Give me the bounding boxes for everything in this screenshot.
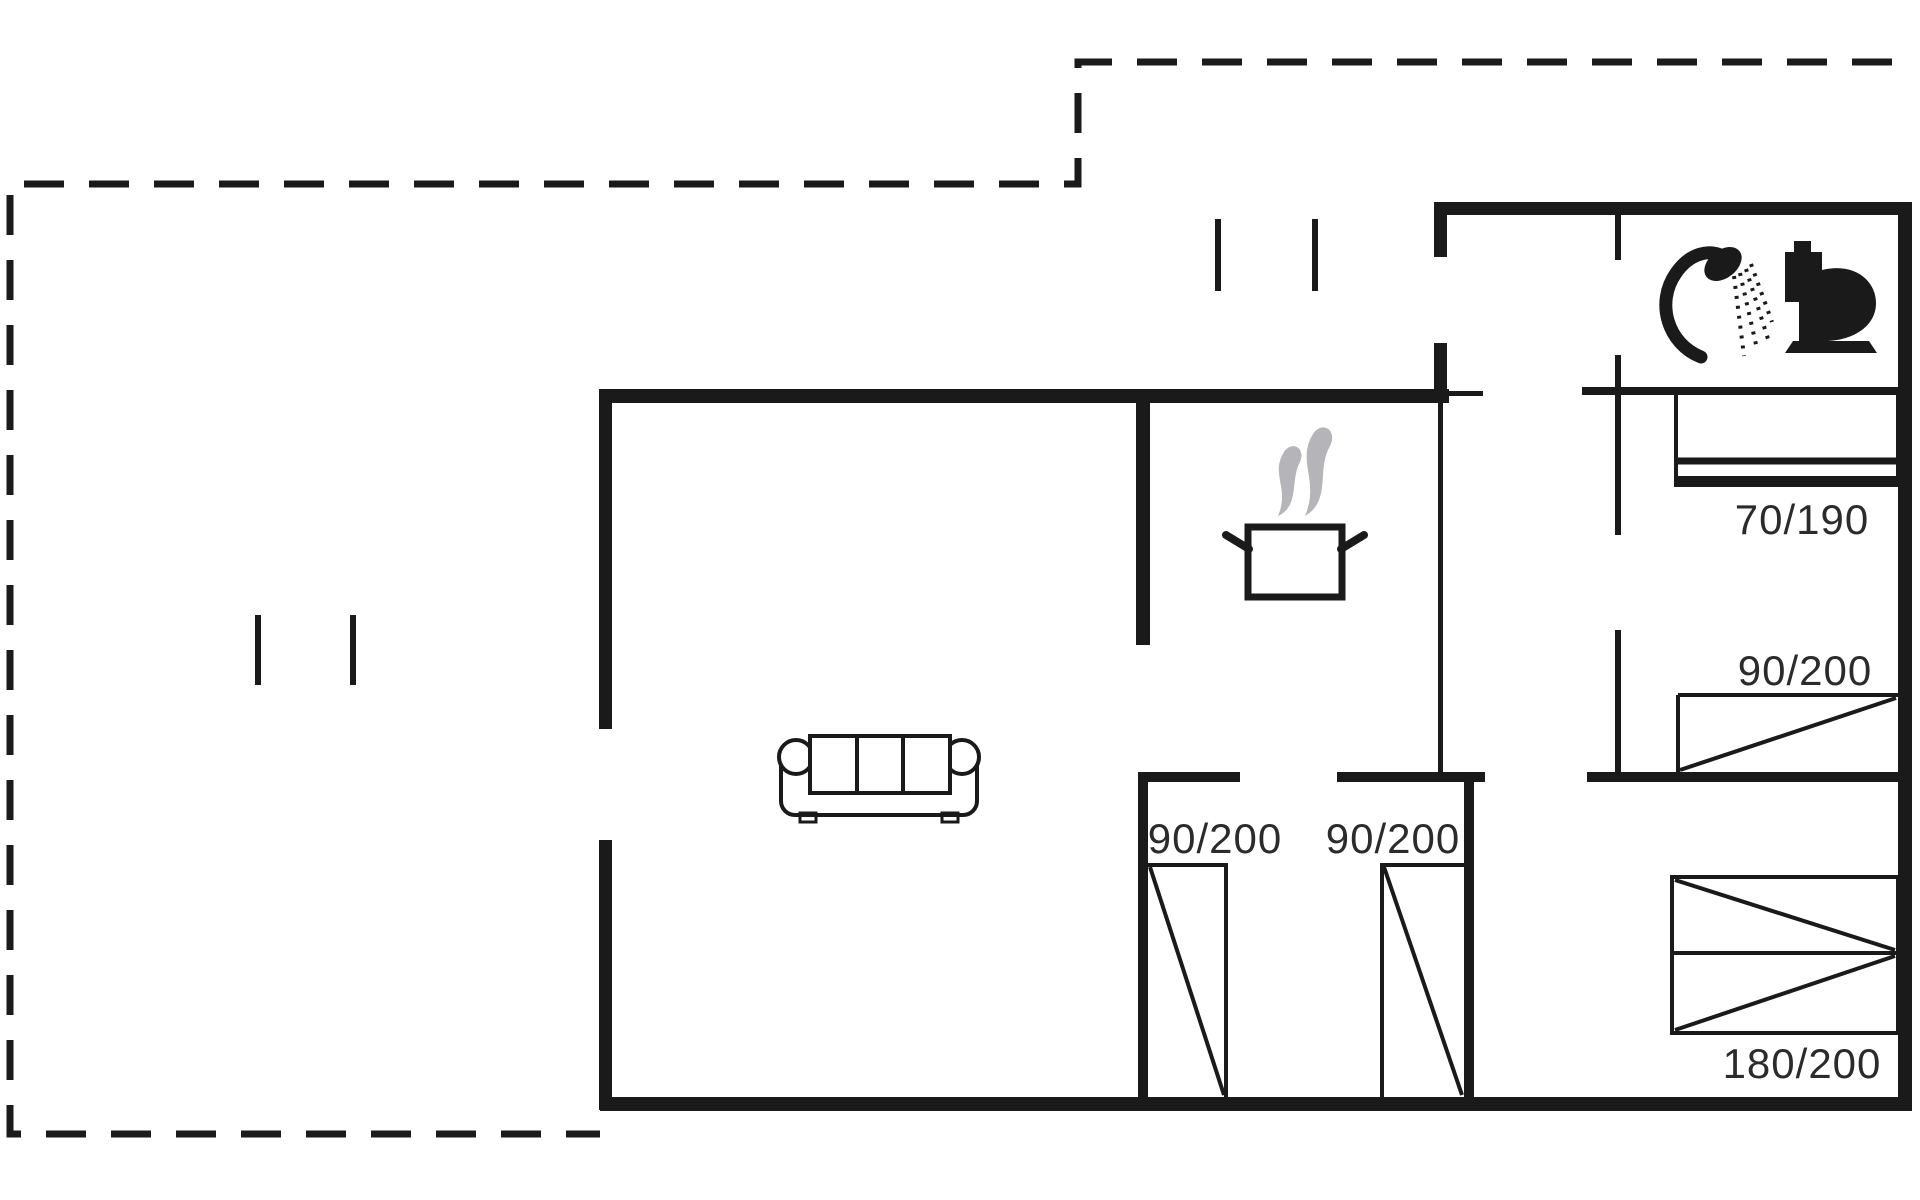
toilet-tank-cap-icon [1794, 241, 1811, 253]
plan-background [0, 0, 1920, 1200]
floor-plan-svg: 70/19090/20090/20090/200180/200 [0, 0, 1920, 1200]
label-closet-90-200-right: 90/200 [1326, 815, 1460, 862]
door-jamb-tick [1443, 391, 1483, 396]
sofa-arm-left [779, 740, 813, 774]
wall-right [1898, 202, 1912, 1111]
label-bed-180-200: 180/200 [1723, 1040, 1882, 1087]
post-terrace-left-1 [255, 615, 261, 685]
wall-entry-lower [1434, 343, 1447, 396]
cooking-pot-icon [1248, 527, 1342, 597]
label-closet-90-200-left: 90/200 [1148, 815, 1282, 862]
wall-bath-divider-b [1615, 355, 1621, 535]
wall-top-right [1435, 202, 1912, 215]
label-bed-90-200-right: 90/200 [1738, 647, 1872, 694]
wall-closetroom-right [1464, 772, 1474, 1104]
wall-left-upper [599, 389, 612, 729]
wall-bottom [600, 1097, 1912, 1111]
wall-top-main [600, 389, 1449, 403]
wall-closetroom-left [1138, 772, 1148, 1104]
wall-closetroom-top-left [1138, 772, 1240, 782]
toilet-base-icon [1785, 341, 1877, 353]
label-bed-70-190: 70/190 [1735, 496, 1869, 543]
wall-kitchen-divider [1136, 389, 1150, 645]
wall-closetroom-top-right [1337, 772, 1485, 782]
wall-entry-stub [1434, 202, 1447, 257]
wall-bath-divider-c [1615, 630, 1621, 777]
floor-plan: 70/19090/20090/20090/200180/200 [0, 0, 1920, 1200]
post-terrace-top-1 [1215, 219, 1221, 291]
post-terrace-top-2 [1312, 219, 1318, 291]
wall-bath-divider-a [1615, 212, 1621, 260]
wall-hall-right-lower [1438, 396, 1443, 777]
post-terrace-left-2 [350, 615, 356, 685]
wall-left-lower [599, 840, 612, 1110]
wall-bedroom-mid-bottom [1587, 772, 1912, 782]
toilet-tank-icon [1785, 252, 1822, 302]
sofa-back [810, 736, 950, 793]
